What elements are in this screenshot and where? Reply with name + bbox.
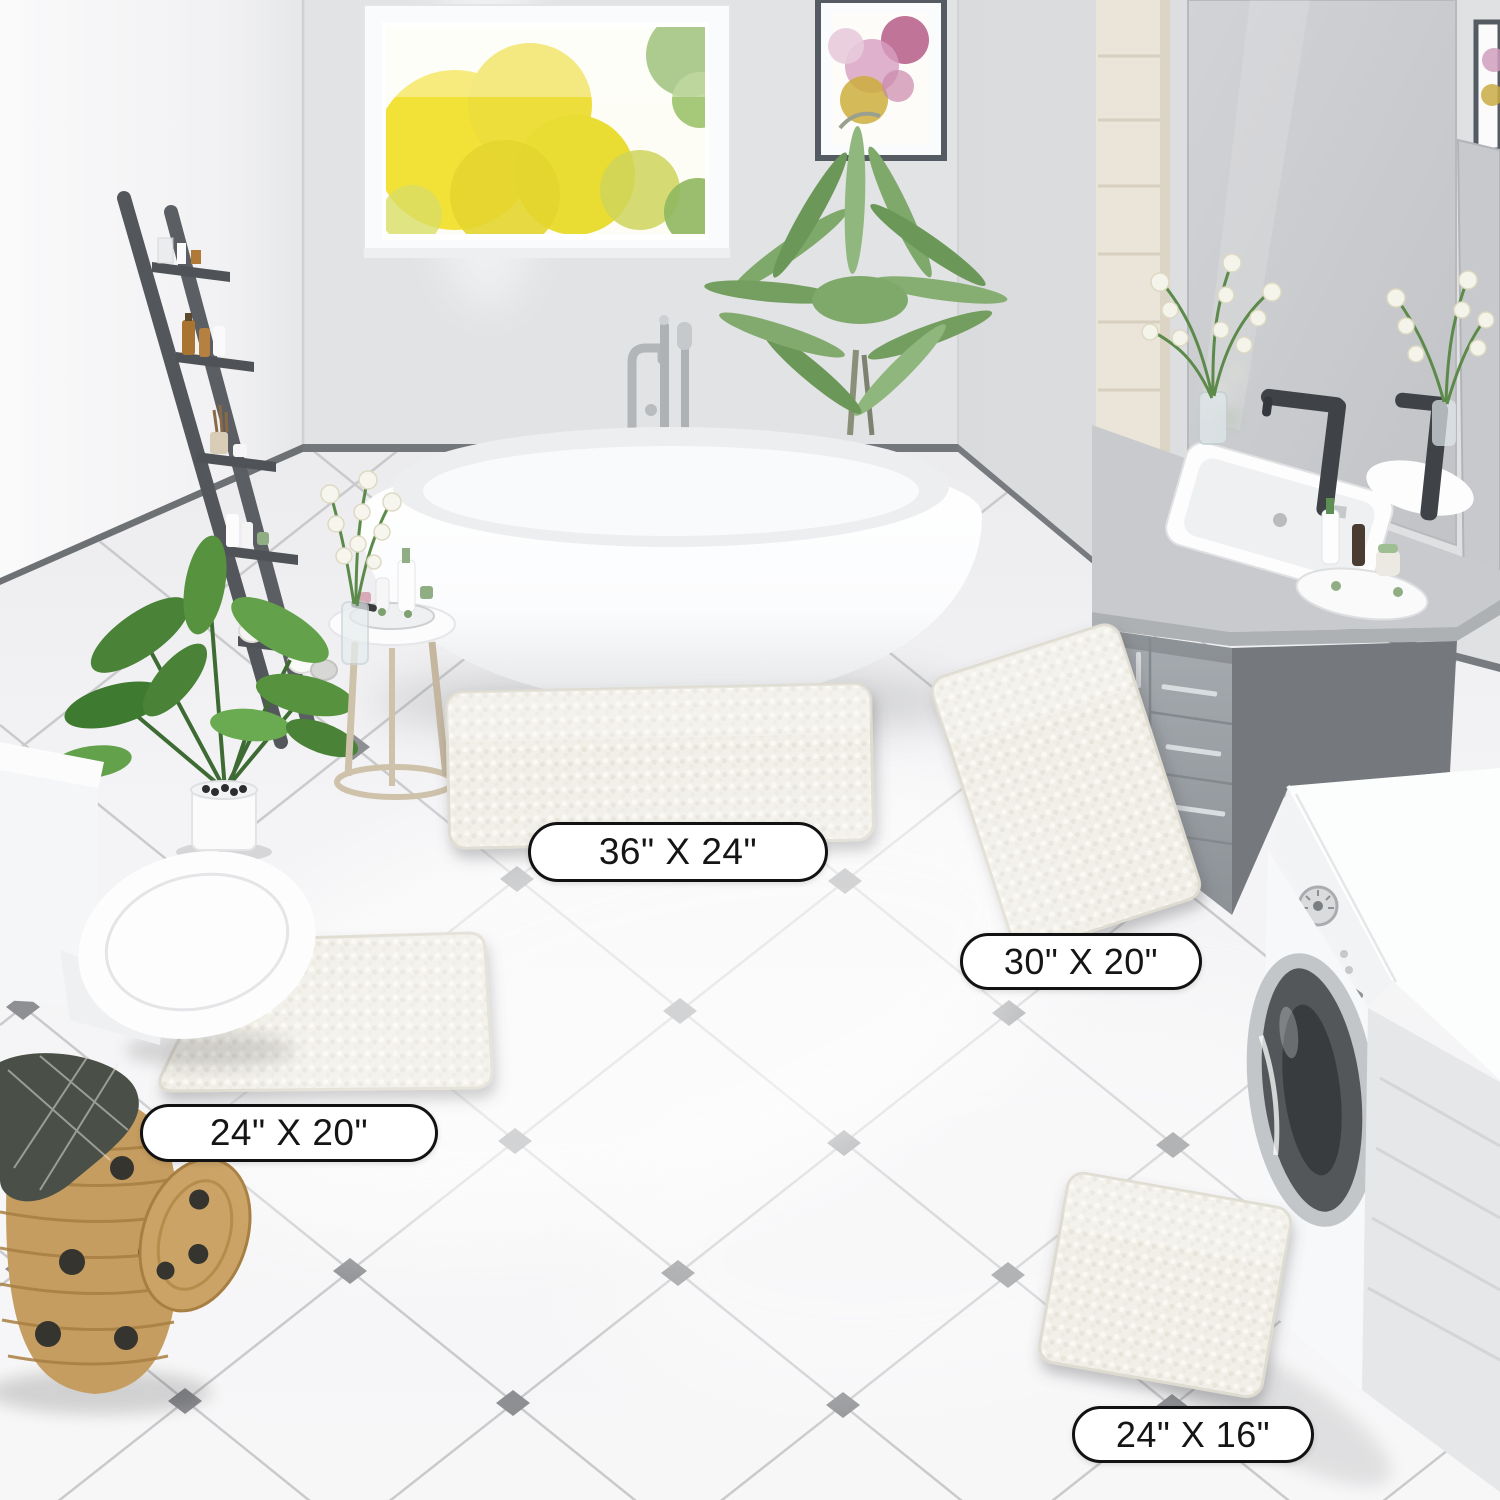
tub-riser xyxy=(660,322,669,437)
glass-vase xyxy=(342,602,368,664)
size-label-contour: 24" X 20" xyxy=(140,1104,438,1162)
window-sill xyxy=(364,248,730,258)
bathroom-scene: 36" X 24" 30" X 20" 24" X 20" 24" X 16" xyxy=(0,0,1500,1500)
glass-vase xyxy=(1199,392,1227,444)
rug-small-rectangle xyxy=(1037,1171,1293,1399)
mirror-right-sliver xyxy=(1458,140,1500,610)
size-label-large: 36" X 24" xyxy=(528,822,828,882)
size-label-small: 24" X 16" xyxy=(1072,1406,1314,1463)
tub-interior xyxy=(423,446,919,536)
wall-art-right-sliver xyxy=(1476,22,1500,150)
cabinet-front xyxy=(1096,0,1162,470)
hand-shower-head xyxy=(677,322,692,350)
cabinet-side xyxy=(1160,0,1170,472)
lotion-pump xyxy=(1326,498,1334,514)
window xyxy=(364,5,732,258)
size-label-runner: 30" X 20" xyxy=(960,933,1202,990)
tall-cabinet xyxy=(1096,0,1170,472)
tub-valve xyxy=(645,404,657,416)
scene-render xyxy=(0,0,1500,1500)
